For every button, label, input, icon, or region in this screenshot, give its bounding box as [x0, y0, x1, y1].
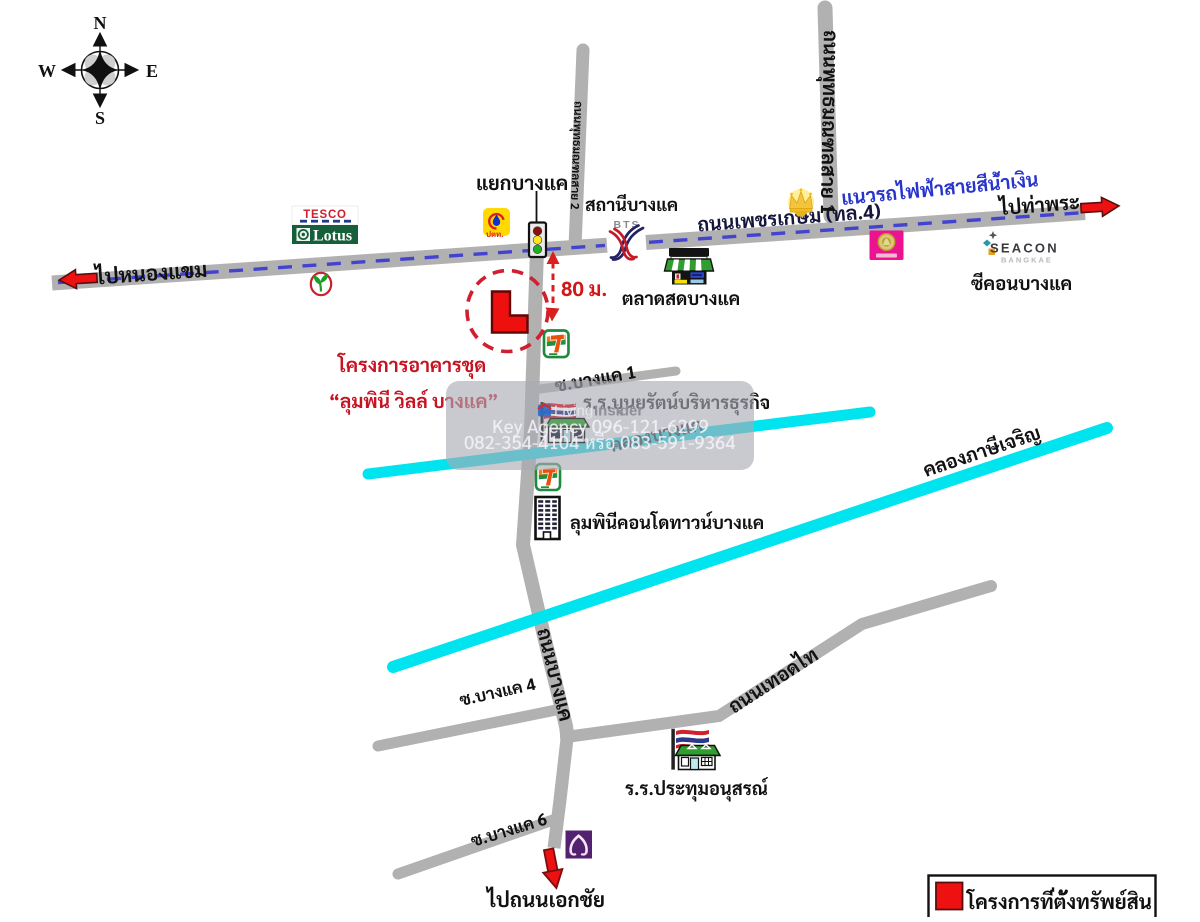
svg-text:.com: .com: [643, 409, 661, 418]
svg-text:N: N: [94, 13, 107, 33]
svg-text:TESCO: TESCO: [303, 209, 347, 221]
svg-text:Living: Living: [554, 403, 593, 420]
svg-text:W: W: [38, 61, 56, 81]
svg-text:BANGKAE: BANGKAE: [1001, 256, 1053, 265]
svg-text:S: S: [95, 108, 105, 128]
svg-text:Lotus: Lotus: [313, 228, 352, 245]
svg-text:SEACON: SEACON: [990, 241, 1059, 256]
svg-text:Insider: Insider: [594, 403, 643, 420]
svg-text:E: E: [146, 61, 158, 81]
